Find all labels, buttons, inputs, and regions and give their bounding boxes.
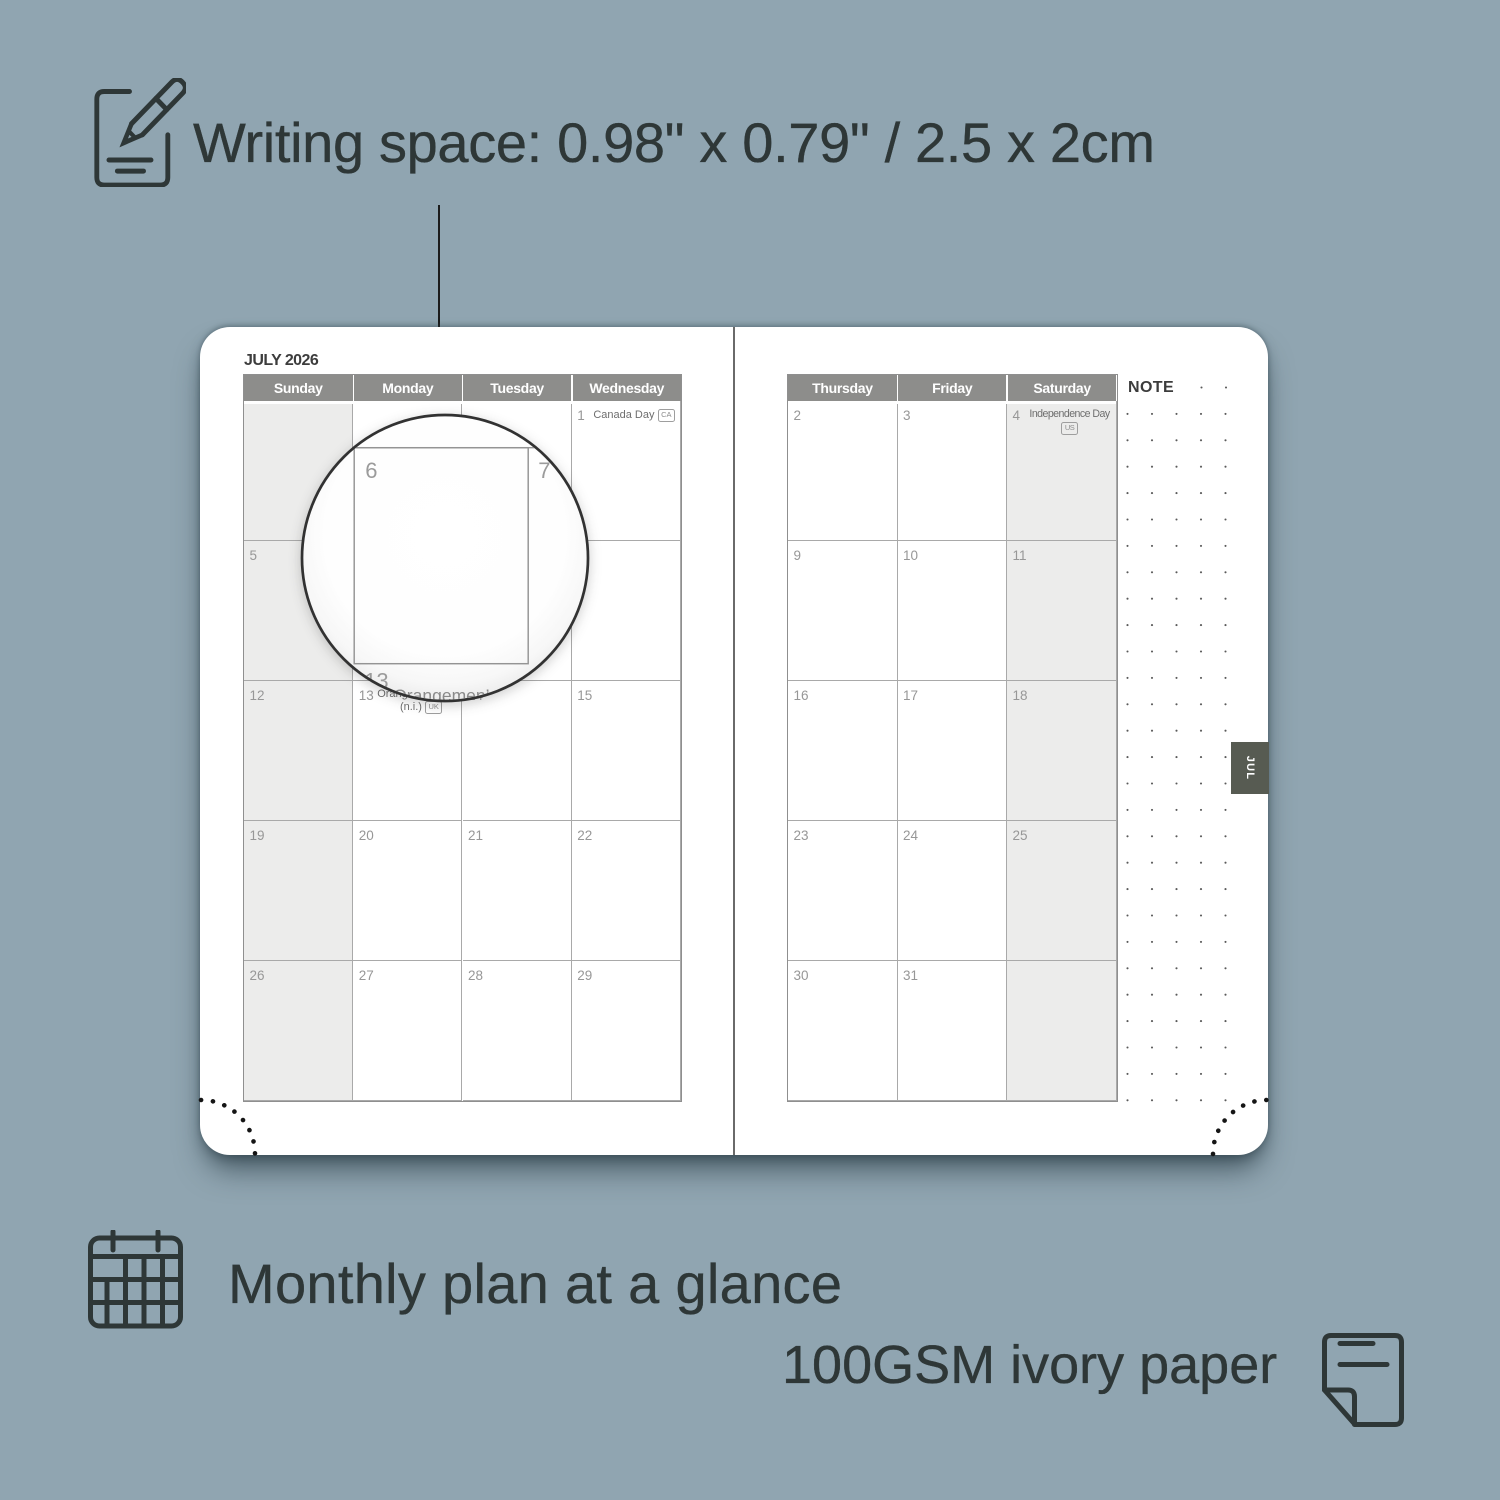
svg-text:13: 13 (364, 668, 388, 693)
svg-text:6: 6 (365, 458, 377, 483)
svg-text:Orangemen’s Day: Orangemen’s Day (393, 685, 534, 705)
svg-text:7: 7 (538, 458, 550, 483)
